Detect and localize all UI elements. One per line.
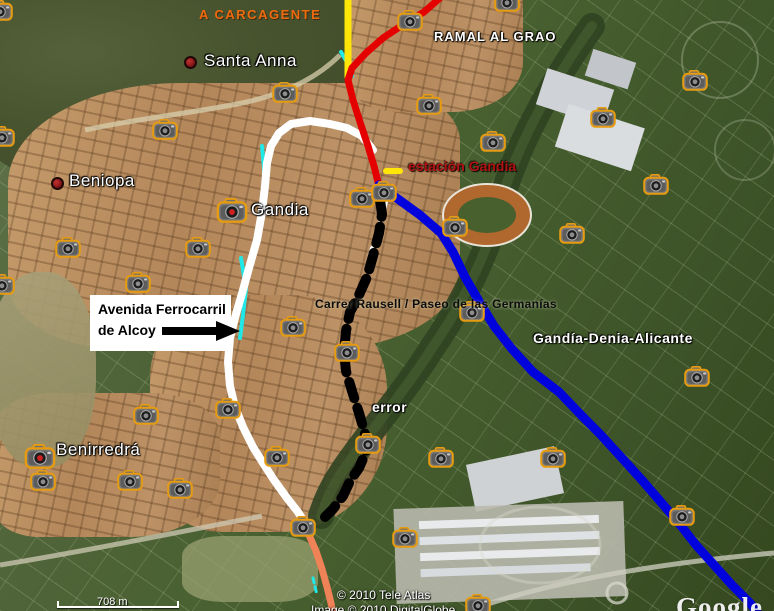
label-estacion-gandia: estación Gandia [408,158,516,174]
label-beniopa: Beniopa [69,171,135,191]
arrow-right-icon [158,319,242,343]
label-benirredra: Benirredrá [56,440,140,460]
google-watermark: Google [676,592,763,611]
placemark-dot[interactable] [51,177,64,190]
label-error: error [372,399,407,415]
label-carrer-rausell: Carrer Rausell / Paseo de las Germanías [315,297,557,311]
scale-bar [57,606,179,608]
annotation-line1: Avenida Ferrocarril [98,299,231,320]
label-gandia: Gandia [251,200,309,220]
attribution-digitalglobe: Image © 2010 DigitalGlobe [311,603,455,611]
label-ramal-al-grao: RAMAL AL GRAO [434,29,557,44]
attribution-tele-atlas: © 2010 Tele Atlas [337,588,430,602]
placemark-dot[interactable] [184,56,197,69]
label-gandia-denia-alicante: Gandía-Denia-Alicante [533,330,693,346]
map-canvas[interactable]: A CARCAGENTESanta AnnaRAMAL AL GRAOBenio… [0,0,774,611]
label-a-carcagente: A CARCAGENTE [199,7,321,22]
label-santa-anna: Santa Anna [204,51,297,71]
